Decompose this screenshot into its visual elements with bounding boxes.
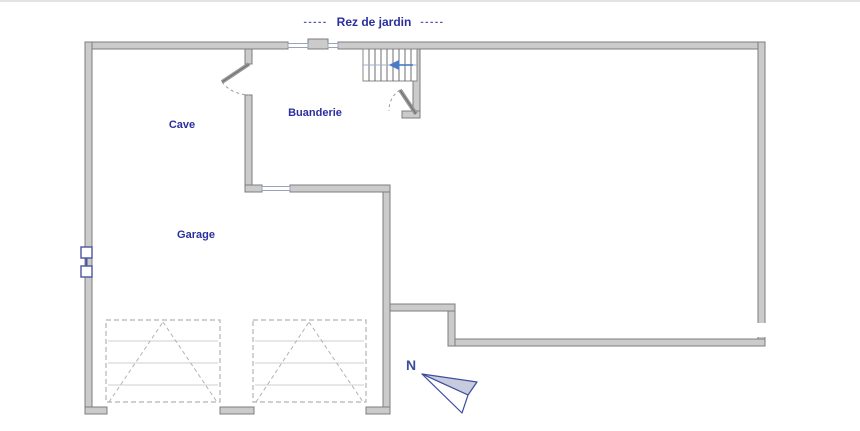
title-text: Rez de jardin bbox=[337, 15, 412, 29]
garage-door bbox=[106, 320, 220, 402]
north-label: N bbox=[406, 357, 416, 373]
wall-segment bbox=[245, 185, 262, 192]
floor-plan-drawing bbox=[0, 2, 860, 431]
wall-segment bbox=[758, 42, 765, 346]
floor-plan: -----Rez de jardin----- Cave Buanderie G… bbox=[0, 0, 860, 431]
door-swing-arc bbox=[222, 82, 249, 95]
stair bbox=[363, 49, 417, 81]
title-dash-right: ----- bbox=[420, 17, 444, 28]
wall-segment bbox=[450, 339, 765, 346]
cave-door bbox=[222, 64, 249, 95]
wall-segment bbox=[383, 185, 390, 414]
room-label-buanderie: Buanderie bbox=[288, 107, 342, 119]
window bbox=[328, 44, 338, 48]
stair-door bbox=[389, 90, 416, 114]
wall-segment bbox=[85, 42, 288, 49]
wall-segment bbox=[366, 407, 390, 414]
wall-segment bbox=[383, 304, 455, 311]
room-label-garage: Garage bbox=[177, 229, 215, 241]
wall-segment bbox=[402, 111, 420, 118]
wall-segment bbox=[245, 95, 252, 192]
door-swing-arc bbox=[389, 90, 400, 111]
wall-segment bbox=[220, 407, 254, 414]
wall-segment bbox=[85, 407, 107, 414]
wall-opening bbox=[757, 323, 766, 337]
door-leaf-edge bbox=[222, 64, 249, 82]
wall-segment bbox=[85, 42, 92, 414]
window bbox=[288, 44, 308, 48]
window bbox=[262, 187, 290, 191]
room-label-cave: Cave bbox=[169, 119, 195, 131]
garage-door bbox=[253, 320, 366, 402]
north-arrow-icon bbox=[422, 374, 477, 413]
wall-segment bbox=[290, 185, 390, 192]
title-dash-left: ----- bbox=[304, 17, 328, 28]
plan-title: -----Rez de jardin----- bbox=[304, 15, 445, 29]
wall-segment bbox=[338, 42, 765, 49]
wall-segment bbox=[245, 49, 252, 64]
garage-doors-group bbox=[106, 320, 366, 402]
wall-pier bbox=[308, 39, 328, 49]
